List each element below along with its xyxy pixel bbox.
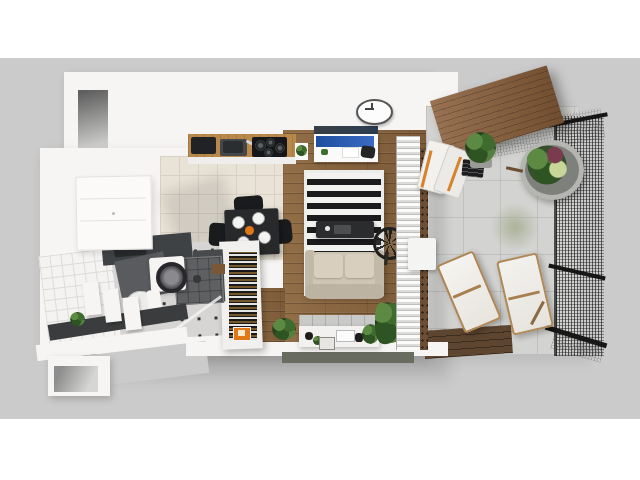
- sideboard-frame: [319, 337, 335, 350]
- ac-unit: [408, 238, 436, 270]
- coffee-table-bowl: [325, 226, 330, 231]
- plate-2: [252, 212, 265, 225]
- table-dish-orange: [245, 226, 254, 235]
- sofa-cushion-left: [314, 254, 343, 278]
- desk-plant: [321, 149, 328, 155]
- sideboard-speaker: [305, 332, 313, 340]
- burner-2: [266, 138, 275, 147]
- moss-patch: [492, 202, 538, 252]
- floorplan-render: [0, 0, 640, 480]
- shower-drain: [193, 275, 201, 283]
- plate-1: [232, 216, 245, 229]
- sofa-backrest: [305, 284, 384, 299]
- plate-3: [258, 231, 271, 244]
- planter-plants: [525, 145, 569, 185]
- sideboard-radio: [336, 330, 355, 342]
- plant-by-island: [272, 318, 296, 340]
- closet-handle: [112, 212, 115, 215]
- top-white-band: [0, 0, 640, 58]
- sill-plant: [296, 145, 307, 156]
- wall-clock: [356, 99, 393, 125]
- desk-chair: [360, 145, 376, 159]
- burner-4: [264, 148, 273, 157]
- rack-poster-figure: [238, 330, 245, 336]
- niche-top-left: [78, 90, 108, 148]
- bottom-white-band: [0, 419, 640, 480]
- kitchen-sink-basin: [223, 141, 243, 153]
- washer-door: [156, 262, 187, 293]
- hood-appliance: [191, 137, 216, 154]
- clock-hand-hour: [371, 103, 373, 110]
- niche-bottom-left: [54, 366, 98, 392]
- sofa-cushion-right: [345, 254, 374, 278]
- ledge-exterior: [282, 352, 414, 363]
- coffee-table-tray: [334, 225, 351, 234]
- counter-edge: [188, 157, 296, 164]
- desk-papers: [342, 147, 359, 158]
- vanity-plant: [70, 312, 85, 326]
- terrace-plant: [465, 132, 496, 163]
- burner-3: [275, 143, 285, 153]
- bath-mirror: [212, 264, 225, 274]
